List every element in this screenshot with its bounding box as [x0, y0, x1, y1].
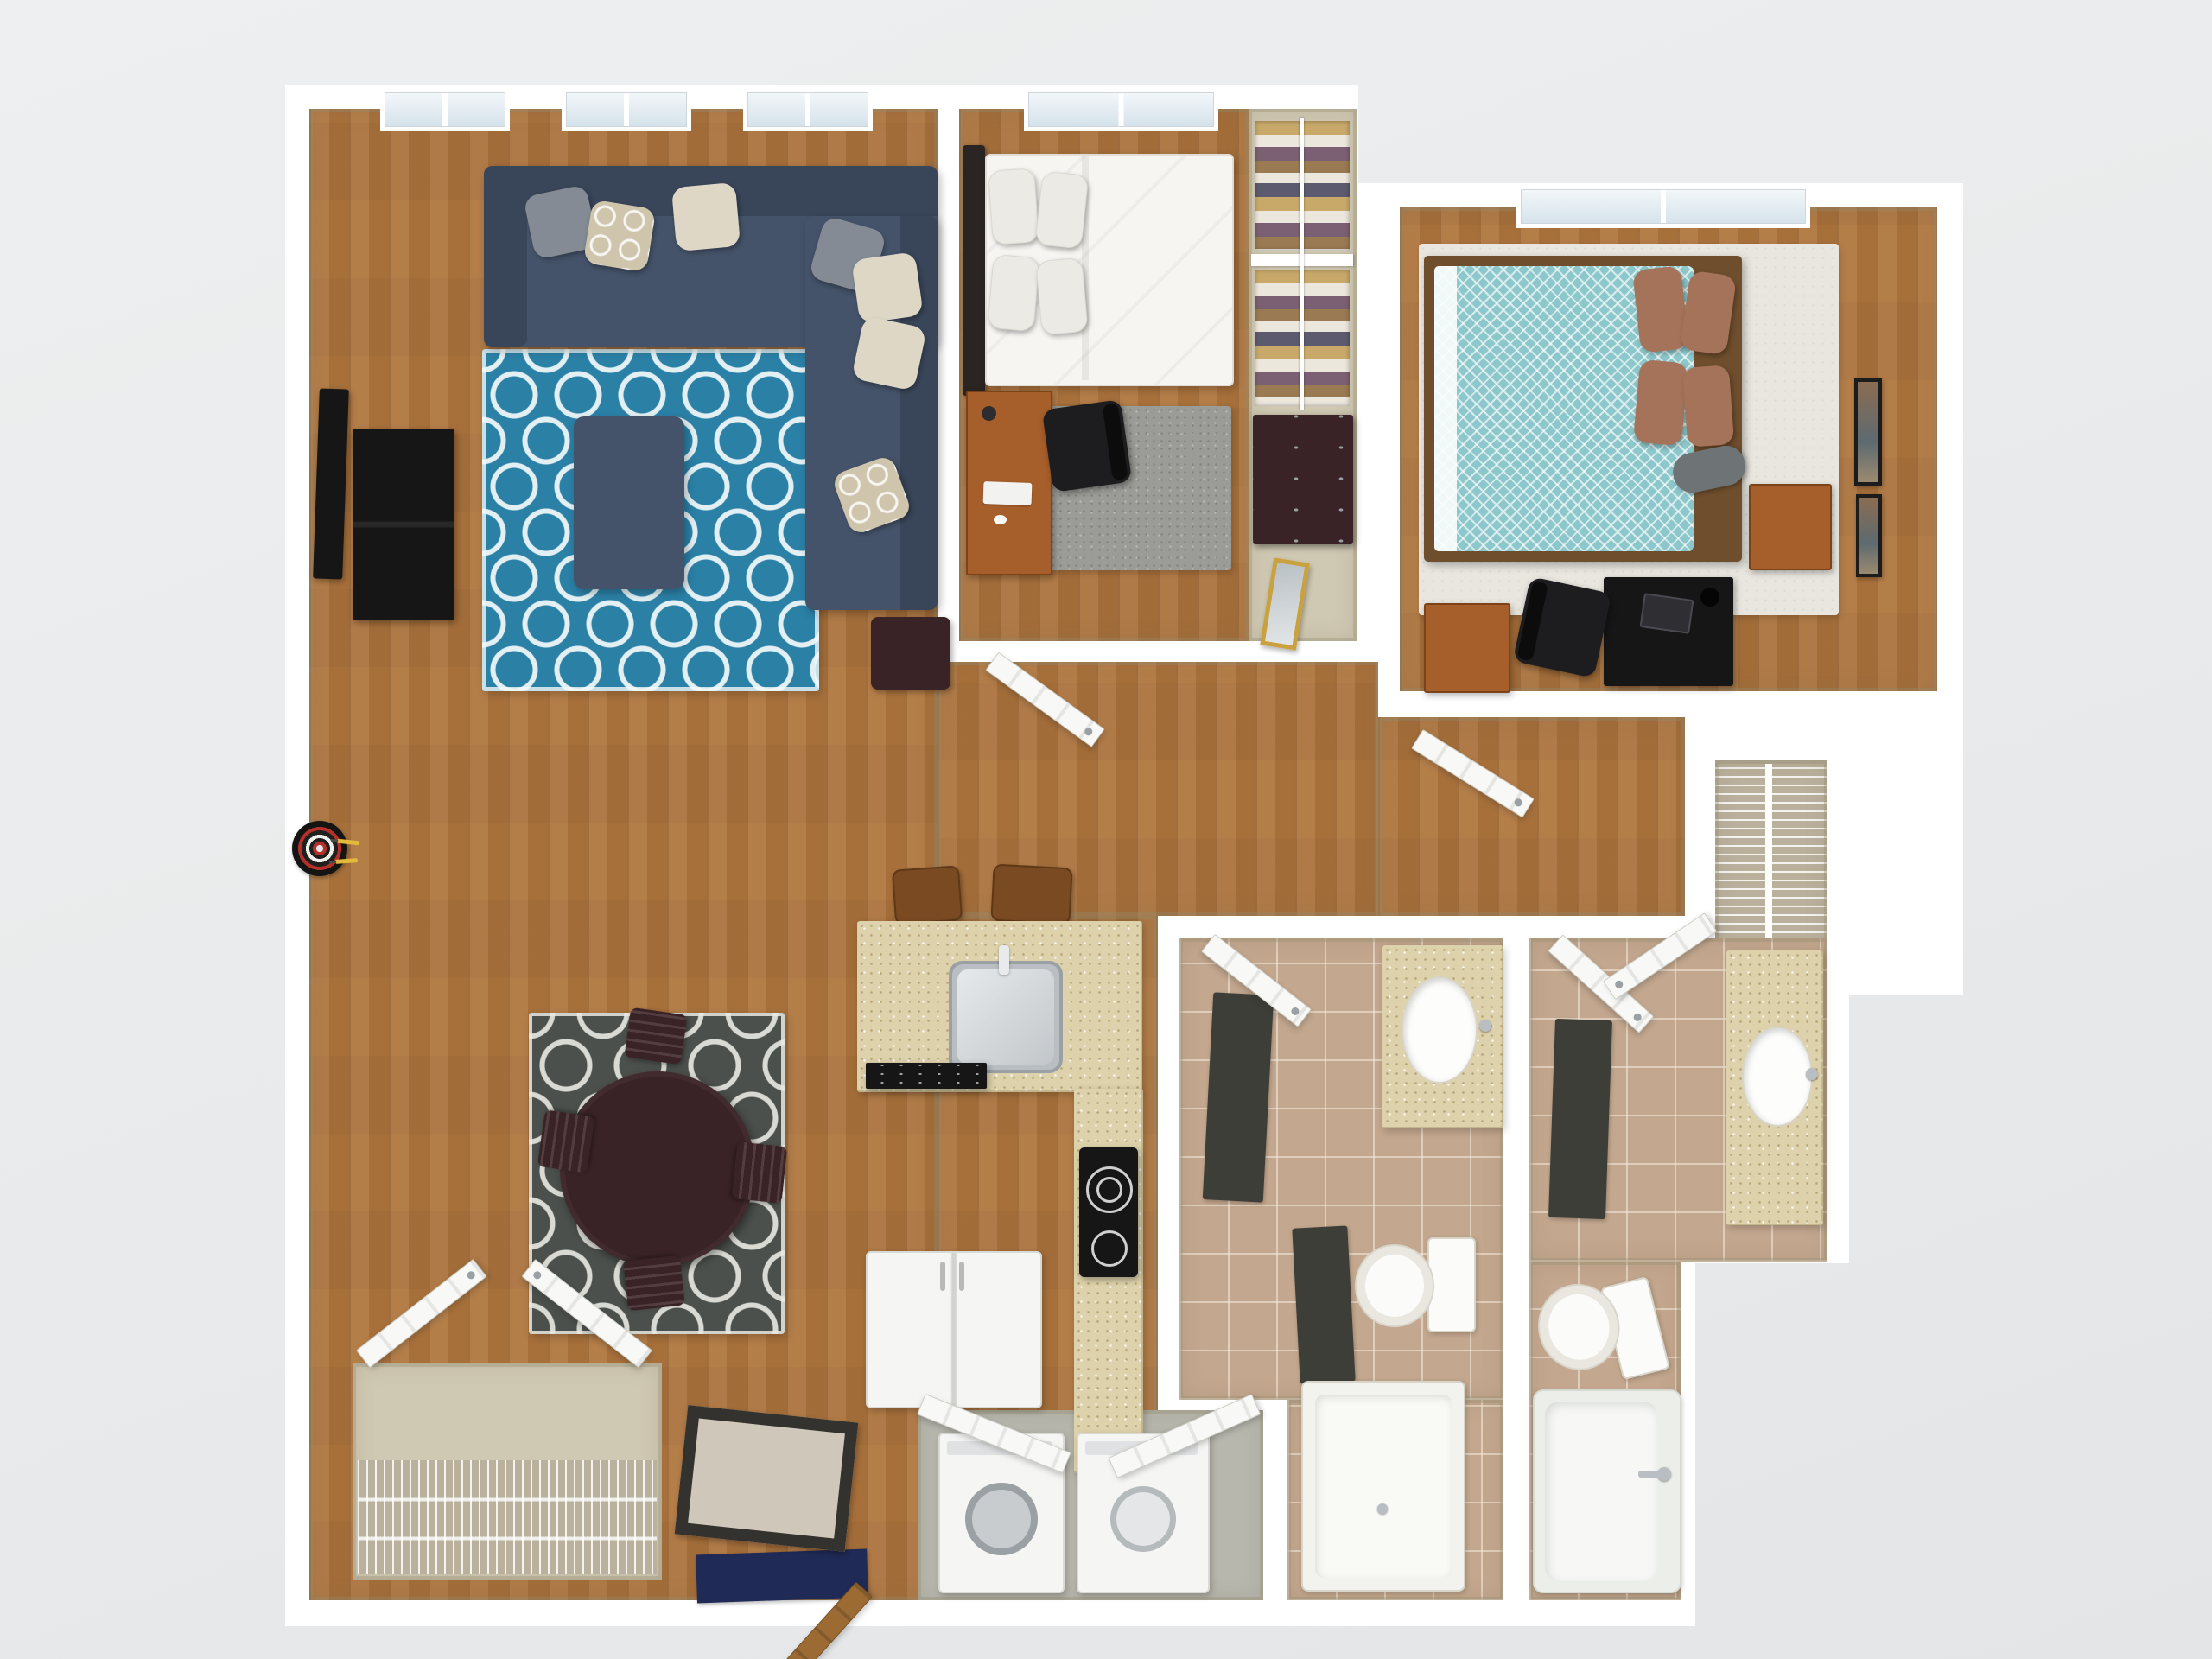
bedroom2-nightstand	[1749, 484, 1832, 570]
burner-small	[1091, 1230, 1128, 1267]
living-window-2	[562, 88, 691, 131]
bedroom2-office-chair	[1513, 576, 1612, 678]
bed-pillow-brown	[1632, 265, 1689, 353]
coat-closet-wire-shelf	[358, 1460, 657, 1574]
tub-spout	[1638, 1471, 1661, 1478]
dining-chair	[623, 1255, 685, 1312]
door-handle	[1614, 979, 1624, 989]
floorplan-scene	[0, 0, 2212, 1659]
kitchen-counter-L	[1074, 1089, 1143, 1473]
door-handle	[466, 1269, 477, 1281]
bed-pillow	[987, 254, 1039, 332]
bathroom1-sink	[1402, 976, 1478, 1084]
sink-bowl	[957, 969, 1054, 1065]
mouse	[994, 515, 1007, 524]
wall-art	[1856, 494, 1882, 577]
door-handle	[1513, 798, 1523, 808]
throw-pillow	[851, 251, 924, 324]
throw-pillow	[671, 182, 741, 251]
bed-pillow	[1035, 257, 1088, 335]
washer-door	[965, 1483, 1038, 1555]
dining-chair	[624, 1007, 687, 1065]
throw-pillow	[583, 200, 657, 273]
bedroom2-desk	[1604, 577, 1733, 686]
throw-pillow	[851, 315, 927, 391]
living-window-3	[743, 88, 873, 131]
dishwasher-front	[866, 1063, 987, 1089]
dartboard	[292, 821, 347, 876]
keyboard	[983, 481, 1033, 505]
dryer-door	[1110, 1486, 1176, 1552]
wall-art	[1854, 378, 1882, 486]
media-console	[353, 429, 454, 620]
bedroom1-headboard	[963, 145, 985, 396]
closet-rod	[1300, 118, 1304, 410]
walk-in-shower	[1301, 1381, 1465, 1592]
bed-pillow-brown	[1682, 365, 1734, 448]
bedroom1-desk	[966, 391, 1052, 575]
bedroom1-window	[1024, 88, 1218, 131]
bed-pillow	[1035, 170, 1090, 249]
bathroom2-faucet	[1806, 1068, 1818, 1080]
living-window-1	[380, 88, 510, 131]
bedroom1-office-chair	[1042, 399, 1132, 493]
island-faucet	[999, 945, 1009, 975]
bathtub	[1533, 1389, 1681, 1593]
shower-drain	[1377, 1503, 1388, 1514]
bathroom1-toilet-tank	[1427, 1237, 1476, 1332]
bath-mat	[1548, 1019, 1612, 1219]
pen-cup	[982, 406, 996, 421]
dining-chair	[537, 1109, 595, 1173]
bed-pillow-brown	[1633, 359, 1688, 447]
bathroom2-vanity	[1726, 950, 1823, 1225]
laptop	[1639, 593, 1694, 634]
bathroom1-toilet-bowl	[1355, 1244, 1434, 1327]
dining-chair	[732, 1141, 788, 1204]
sofa-armrest	[484, 166, 527, 347]
burner-large-inner	[1096, 1177, 1122, 1203]
shower-pan	[1315, 1395, 1452, 1578]
bathroom1-faucet	[1479, 1020, 1491, 1032]
bedroom1-dresser	[1253, 415, 1353, 544]
cooktop	[1079, 1147, 1138, 1277]
side-table	[871, 617, 950, 690]
ottoman	[574, 416, 684, 589]
refrigerator	[866, 1251, 1042, 1408]
bar-stool	[990, 864, 1072, 925]
bath-mat	[1292, 1225, 1355, 1383]
bed-pillow	[988, 168, 1039, 245]
bedroom2-window	[1516, 185, 1810, 228]
bathroom2-sink	[1742, 1027, 1813, 1127]
door-handle	[1632, 1012, 1643, 1023]
fridge-handle	[959, 1262, 964, 1291]
bath-mat	[1203, 992, 1274, 1202]
bar-stool	[892, 865, 963, 925]
desk-speaker	[1700, 588, 1719, 607]
bathroom1-vanity	[1382, 945, 1503, 1128]
dining-table	[560, 1071, 755, 1267]
entry-mat	[675, 1405, 859, 1552]
tub-basin	[1545, 1402, 1657, 1581]
door-handle	[1290, 1006, 1301, 1017]
island-sink	[949, 961, 1063, 1073]
fridge-handle	[940, 1262, 945, 1291]
door-handle	[531, 1269, 543, 1281]
bedroom2-sheet-fold	[1434, 266, 1457, 551]
door-handle	[1083, 727, 1094, 738]
bedroom2-chest	[1424, 603, 1510, 693]
